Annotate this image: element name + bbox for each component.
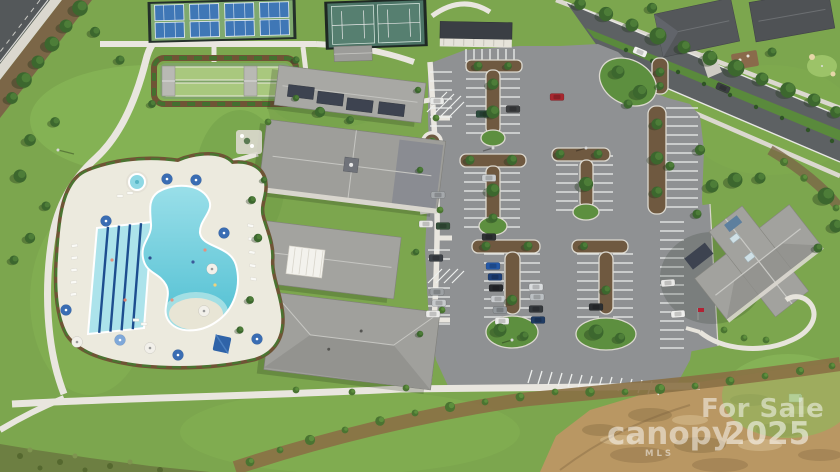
car: [430, 289, 444, 296]
umbrella: [72, 337, 83, 348]
car: [530, 294, 544, 301]
pickleball-court: [190, 4, 219, 20]
umbrella: [207, 264, 218, 275]
umbrella: [162, 174, 173, 185]
umbrella: [101, 216, 112, 227]
car: [488, 274, 502, 281]
car: [489, 285, 503, 292]
car: [550, 94, 564, 101]
car: [426, 311, 440, 318]
tennis-courts: [324, 0, 428, 50]
car: [529, 284, 543, 291]
pool-area: [57, 156, 281, 367]
pickleball-court: [260, 19, 289, 35]
umbrella: [145, 343, 156, 354]
lap-pool: [88, 222, 152, 334]
car: [419, 221, 433, 228]
bocce-lane: [166, 83, 284, 96]
watermark-year: 2025: [724, 416, 810, 452]
pavilion: [440, 21, 512, 47]
umbrella: [191, 175, 202, 186]
car: [430, 98, 444, 105]
watermark-brand: canopy: [607, 416, 732, 452]
car: [529, 306, 543, 313]
pickleball-court: [190, 21, 219, 37]
bocce-lane: [166, 67, 284, 80]
pickleball-court: [225, 20, 254, 36]
umbrella: [61, 305, 72, 316]
umbrella: [173, 350, 184, 361]
car: [493, 307, 507, 314]
aerial-photo: For Sale canopy 2025 MLS: [0, 0, 840, 472]
car: [431, 192, 445, 199]
watermark-mls: MLS: [645, 449, 674, 459]
car: [436, 223, 450, 230]
car: [486, 263, 500, 270]
umbrella: [199, 306, 210, 317]
pickleball-courts: [148, 0, 297, 43]
car: [506, 106, 520, 113]
pickleball-court: [155, 22, 184, 38]
pickleball-court: [225, 3, 254, 19]
shade-sail: [213, 335, 232, 354]
spa: [126, 171, 148, 193]
car: [589, 304, 603, 311]
car: [495, 318, 509, 325]
pickleball-court: [260, 2, 289, 18]
car: [661, 279, 675, 287]
pickleball-court: [155, 5, 184, 21]
patio: [236, 130, 262, 154]
car: [432, 300, 446, 307]
car: [671, 310, 685, 318]
car: [482, 234, 496, 241]
umbrella: [115, 335, 126, 346]
umbrella: [252, 334, 263, 345]
car: [531, 317, 545, 324]
umbrella: [219, 228, 230, 239]
maintenance-building: [334, 45, 373, 61]
car: [482, 175, 496, 182]
car: [491, 296, 505, 303]
car: [429, 255, 443, 262]
